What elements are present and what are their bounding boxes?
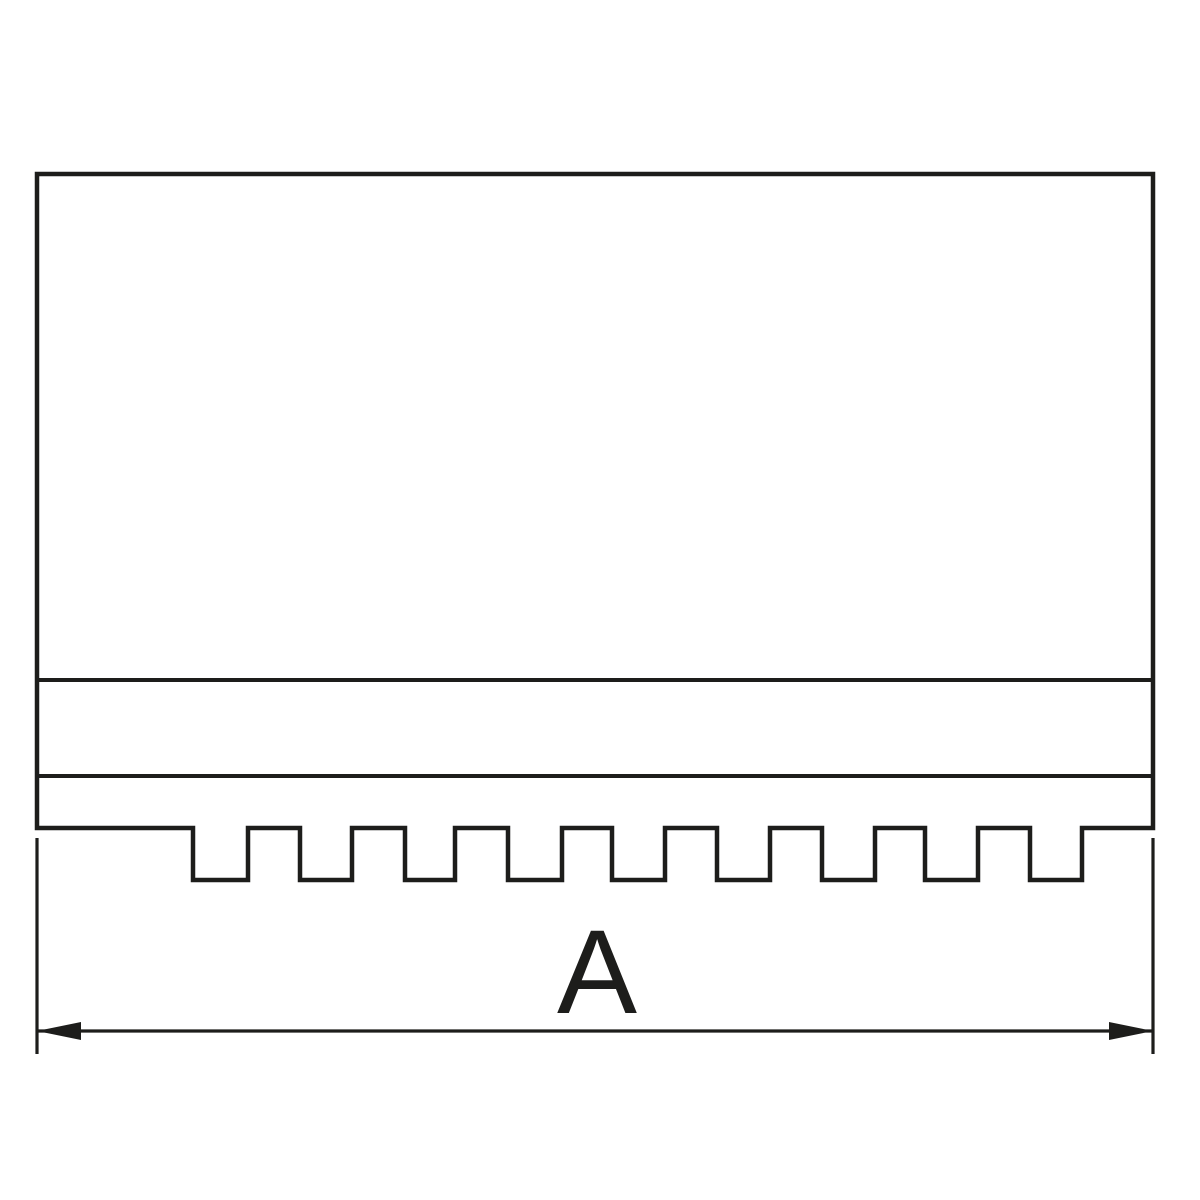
arrowhead-right-icon (1109, 1022, 1153, 1040)
arrowhead-left-icon (37, 1022, 81, 1040)
dimension-label: A (557, 905, 637, 1039)
jaw-drawing-canvas: A (0, 0, 1200, 1200)
technical-drawing-page: A (0, 0, 1200, 1200)
